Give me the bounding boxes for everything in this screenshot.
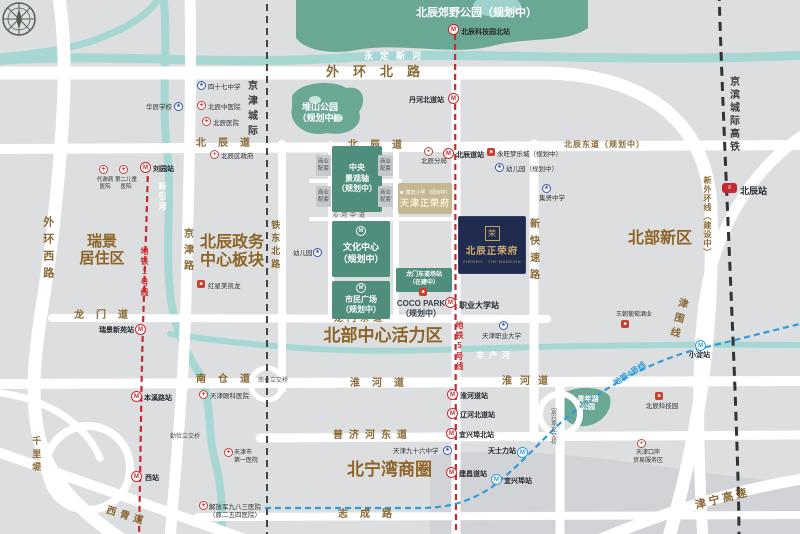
project-name: 北辰正荣府 (466, 243, 519, 257)
metro-station-icon: M (131, 391, 142, 402)
label-poi-hongxing: 红星美凯龙 (208, 283, 241, 291)
hospital-icon: + (199, 390, 208, 399)
label-poi-er-ertong: 第二儿童 医院 (112, 177, 140, 191)
label-poi-kejiyuan: 北辰科技园 (640, 403, 684, 411)
label-jingbin-gaotie: 京滨城际高铁 (726, 76, 739, 154)
label-st-jianchangdao: 建昌道站 (459, 471, 487, 480)
label-qinhezhongdao: 沁河中道 (332, 213, 368, 221)
shopping-icon: ■ (197, 280, 205, 288)
label-xinwaihuan: 新外环线（建设中） (702, 176, 712, 257)
label-jingjinlu: 京津路 (180, 228, 193, 276)
government-icon: ● (637, 439, 646, 448)
metro-station-icon: M (447, 408, 458, 419)
label-qinjian-lijiao: 勤俭立交桥 (170, 434, 200, 442)
sister-project-name: 天津正荣府 (400, 196, 450, 209)
label-poi-96-middle: 天津九十六中学 (393, 448, 439, 456)
metro-station-icon: M (445, 297, 456, 308)
label-st-ruijingxinyuan: 瑞景新苑站 (99, 327, 134, 336)
label-poi-yanke: 天津眼科医院 (210, 393, 249, 401)
school-icon: ★ (495, 163, 504, 172)
project-tagline: ZHENRO · THE MANSION (463, 259, 521, 264)
label-beichendongdao: 北辰东道（规划中） (564, 140, 645, 150)
government-icon: ● (210, 150, 219, 159)
metro-station-icon: M (448, 93, 459, 104)
label-st-kejiyuan-bei: 北辰科技园北站 (461, 29, 510, 38)
government-icon: ● (424, 147, 433, 156)
label-qingnianhu-park: 青年湖 公园 (566, 396, 610, 413)
label-beiningwan: 北宁湾商圈 (342, 460, 437, 480)
label-st-tianshili: 天士力站 (488, 448, 516, 457)
label-qianliti: 千里堤 (30, 436, 41, 475)
label-pujihedongdao: 普济河东道 (333, 430, 413, 443)
hospital-icon: + (199, 501, 208, 510)
label-coco-park: COCO PARK （规划中） (394, 299, 448, 319)
tianjin-zhengrongfu-block: ★ 模范小学（规划中） 天津正荣府 (398, 183, 452, 214)
school-icon: ★ (197, 81, 206, 90)
metro-station-icon: M (446, 467, 457, 478)
label-st-xiaodian: 小淀站 (689, 352, 710, 361)
planned-school-label: ★ 模范小学（规划中） (399, 189, 450, 196)
label-st-yixingbubei: 宜兴埠北站 (459, 432, 494, 441)
label-biz2: 商业 配套 (378, 155, 393, 176)
label-waihuanxilu: 外环西路 (40, 216, 54, 284)
hospital-icon: + (119, 165, 128, 174)
label-fengchanhe: 丰产河 (476, 351, 515, 361)
hospital-icon: + (224, 448, 233, 457)
label-poi-jixian: 集贤中学 (530, 195, 574, 203)
school-icon: ★ (499, 321, 508, 330)
metro-station-blue-icon: M (695, 340, 706, 351)
label-zhengwu-bankuai: 北辰政务 中心板块 (192, 234, 272, 271)
label-ruijing: 瑞景 居住区 (72, 233, 132, 268)
label-poi-yongwang: 永旺梦乐城（规划中） (497, 151, 562, 159)
metro-station-icon: M (446, 428, 457, 439)
metro-station-icon: M (140, 162, 151, 173)
label-waihuan-beilu: 外环北路 (326, 64, 434, 80)
beichen-zhengrongfu-block: 荣 北辰正荣府 ZHENRO · THE MANSION (458, 216, 526, 274)
label-poi-kouan: 天津口岸 贸易服务区 (622, 450, 674, 465)
label-zhongyang-zhou: 中央 景观轴 （规划中） (332, 146, 382, 212)
label-poi-youeryuan-w: 幼儿园 (293, 250, 313, 258)
label-xinkuaisulu: 新快速路 (526, 218, 539, 286)
label-jingjin-chengji: 京津城际 (244, 80, 257, 140)
label-poi-beichen-hosp: 北辰医院 (213, 120, 239, 128)
shopping-icon: ■ (487, 148, 495, 156)
project-logo-icon: 荣 (485, 226, 500, 241)
school-icon: ★ (313, 248, 322, 257)
label-poi-47-middle: 四十七中学 (208, 84, 241, 92)
label-beibu-xinqu: 北部新区 (620, 230, 700, 248)
hospital-icon: + (99, 165, 108, 174)
label-huaihedao: 淮河道 (350, 378, 416, 391)
label-poi-diyi-hosp: 天津市 第一医院 (234, 450, 258, 465)
location-map: 外环北路北辰道北辰道北辰东道（规划中）龙门道龙门东道淮河道淮河道南仓道普济河东道… (0, 0, 800, 534)
label-huoli-qu: 北部中心活力区 (308, 326, 458, 346)
label-biz3: 商业 配套 (316, 186, 331, 207)
hospital-icon: + (202, 117, 211, 126)
shopping-icon: ■ (655, 392, 663, 400)
metro-station-icon: M (131, 471, 142, 482)
metro-station-icon: M (443, 148, 454, 159)
compass-icon (0, 0, 38, 38)
label-zhichenglu: 志成路 (338, 509, 404, 522)
metro-station-icon: M (448, 24, 459, 35)
school-icon: ★ (542, 184, 551, 193)
label-st-benxilu: 本溪路站 (144, 395, 172, 404)
label-st-liaohebeidao: 辽河北道站 (460, 412, 495, 421)
metro-station-icon: M (356, 283, 366, 293)
label-st-zhiyedaxue: 职业大学站 (459, 301, 499, 311)
label-poi-qu-gov: 北辰区政府 (221, 153, 254, 161)
label-st-xizhan: 西站 (145, 475, 159, 484)
school-icon: ★ (174, 102, 183, 111)
metro-station-icon: M (356, 226, 366, 236)
label-biz1: 商业 配套 (316, 155, 331, 176)
label-st-yixingbu: 宜兴埠站 (504, 478, 532, 487)
metro-station-blue-icon: M (491, 474, 502, 485)
hospital-icon: + (197, 101, 206, 110)
label-yongdingxinhe: 永定新河 (364, 51, 428, 62)
label-poi-983: 解放军九八三医院 （原二五四医院） (209, 504, 261, 520)
label-nancangdao: 南仓道 (196, 374, 262, 387)
label-yixingbu-lijiao: 宜兴埠立交桥 (548, 408, 556, 444)
label-longmendao: 龙门道 (74, 310, 140, 323)
label-st-huaihedao: 淮河道站 (460, 393, 488, 402)
label-poi-fenju: 北辰分局 (414, 158, 454, 166)
railway-station-icon: ≡ (722, 183, 737, 193)
metro-station-blue-icon: M (517, 447, 528, 458)
label-st-liuyuan: 刘园站 (153, 166, 174, 175)
label-xinyinhe: 新引河 (157, 182, 167, 212)
label-duishan-park: 堆山公园 （规划中） (292, 102, 348, 124)
label-st-beichendao: 北辰道站 (456, 152, 484, 161)
label-jiaoye-park: 北辰郊野公园（规划中） (416, 7, 536, 20)
shopping-icon: ■ (621, 320, 629, 328)
label-st-beichen: 北辰站 (740, 186, 767, 197)
label-line1: 地铁1号线 (139, 247, 149, 298)
school-icon: ★ (443, 446, 452, 455)
label-st-danhebeidao: 丹河北道站 (409, 97, 444, 106)
label-nancang-lijiao: 南仓立交桥 (258, 378, 288, 386)
label-poi-zhongyi-hosp: 北辰中医院 (208, 104, 241, 112)
label-biz4: 商业 配套 (378, 186, 393, 207)
label-poi-youeryuan-e: 幼儿园（规划中） (506, 166, 558, 174)
shopping-icon: ■ (419, 288, 427, 296)
metro-station-icon: M (447, 389, 458, 400)
label-poi-zhiye-univ: 天津职业大学 (482, 333, 521, 341)
label-huaihedao2: 淮河道 (502, 376, 556, 389)
label-poi-huachen-school: 华辰学校 (146, 104, 172, 112)
metro-station-icon: M (135, 324, 146, 335)
label-poi-wangchao: 王朝葡萄酒业 (616, 312, 652, 320)
